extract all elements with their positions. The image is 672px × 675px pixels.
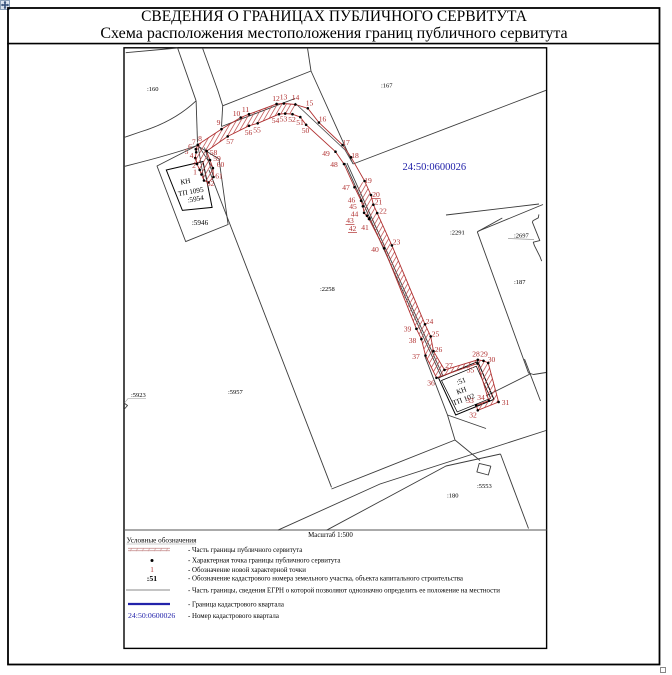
svg-text:54: 54 [272,116,280,125]
svg-text:22: 22 [379,207,387,216]
svg-text::5957: :5957 [228,389,244,396]
svg-text:10: 10 [233,109,241,118]
svg-text:50: 50 [302,126,310,135]
svg-text:47: 47 [342,183,350,192]
svg-text:1: 1 [150,566,154,574]
svg-text:- Граница кадастрового квартал: - Граница кадастрового квартала [188,602,284,609]
svg-text:4: 4 [190,151,194,160]
svg-text:30: 30 [488,355,496,364]
svg-text::5923: :5923 [131,392,146,399]
svg-text:31: 31 [502,398,510,407]
svg-text::2697: :2697 [514,233,530,240]
svg-text:- Номер кадастрового квартала: - Номер кадастрового квартала [188,613,279,620]
svg-text:Масштаб 1:500: Масштаб 1:500 [308,532,353,539]
svg-text:- Часть границы публичного сер: - Часть границы публичного сервитута [188,547,302,554]
svg-text::187: :187 [514,279,526,286]
svg-text::160: :160 [147,86,159,93]
svg-text:32: 32 [469,411,477,420]
svg-text::51: :51 [147,574,157,583]
svg-text:34: 34 [477,393,485,402]
svg-text:33: 33 [466,396,474,405]
svg-text:КН: КН [180,177,191,187]
svg-text:18: 18 [351,151,359,160]
svg-text:14: 14 [292,93,300,102]
svg-text:56: 56 [245,128,253,137]
svg-text:49: 49 [322,149,330,158]
svg-text:24:50:0600026: 24:50:0600026 [128,611,175,620]
svg-text:- Характерная точка границы пу: - Характерная точка границы публичного с… [188,558,340,565]
svg-text:46: 46 [348,196,356,205]
svg-text::5946: :5946 [192,219,209,227]
svg-text:40: 40 [371,245,379,254]
svg-text:Схема расположения местоположе: Схема расположения местоположения границ… [100,25,567,42]
svg-text:42: 42 [349,224,357,233]
svg-text:36: 36 [427,379,435,388]
svg-text:23: 23 [393,238,401,247]
svg-text:61: 61 [215,172,223,181]
svg-text:- Обозначение новой характерно: - Обозначение новой характерной точки [188,567,306,574]
svg-text:11: 11 [242,105,250,114]
svg-text:- Часть границы, сведения ЕГРН: - Часть границы, сведения ЕГРН о которой… [188,588,500,595]
svg-text::180: :180 [447,493,459,500]
svg-text:37: 37 [412,352,420,361]
svg-text:57: 57 [226,137,234,146]
svg-text:9: 9 [217,118,221,127]
svg-text:3: 3 [194,156,198,165]
svg-text:Условные обозначения: Условные обозначения [127,537,198,545]
svg-text:60: 60 [217,160,225,169]
svg-text:51: 51 [296,118,304,127]
svg-text:- Обозначение кадастрового ном: - Обозначение кадастрового номера земель… [188,576,463,583]
svg-text:19: 19 [364,176,372,185]
svg-text:17: 17 [342,138,350,147]
svg-text:24: 24 [426,317,434,326]
svg-text:15: 15 [306,99,314,108]
svg-text:21: 21 [375,198,383,207]
svg-text:27: 27 [445,361,453,370]
svg-text::5553: :5553 [477,483,492,490]
svg-text:25: 25 [432,330,440,339]
svg-text:26: 26 [435,345,443,354]
svg-text:16: 16 [319,115,327,124]
svg-text:8: 8 [198,134,202,143]
svg-text:7: 7 [192,138,196,147]
svg-text:53: 53 [280,115,288,124]
svg-text:24:50:0600026: 24:50:0600026 [403,162,467,173]
svg-text:39: 39 [404,325,412,334]
svg-text:28: 28 [472,350,480,359]
svg-text:55: 55 [253,126,261,135]
svg-text:СВЕДЕНИЯ О ГРАНИЦАХ ПУБЛИЧНОГО: СВЕДЕНИЯ О ГРАНИЦАХ ПУБЛИЧНОГО СЕРВИТУТА [141,8,528,25]
svg-text::2258: :2258 [320,286,335,293]
svg-text:62: 62 [207,179,215,188]
svg-text:13: 13 [280,93,288,102]
svg-text::2291: :2291 [450,230,465,237]
svg-text:48: 48 [330,160,338,169]
svg-text:38: 38 [409,336,417,345]
svg-text:41: 41 [361,223,369,232]
svg-text::167: :167 [381,83,393,90]
svg-text:52: 52 [288,115,296,124]
svg-text:35: 35 [467,366,475,375]
